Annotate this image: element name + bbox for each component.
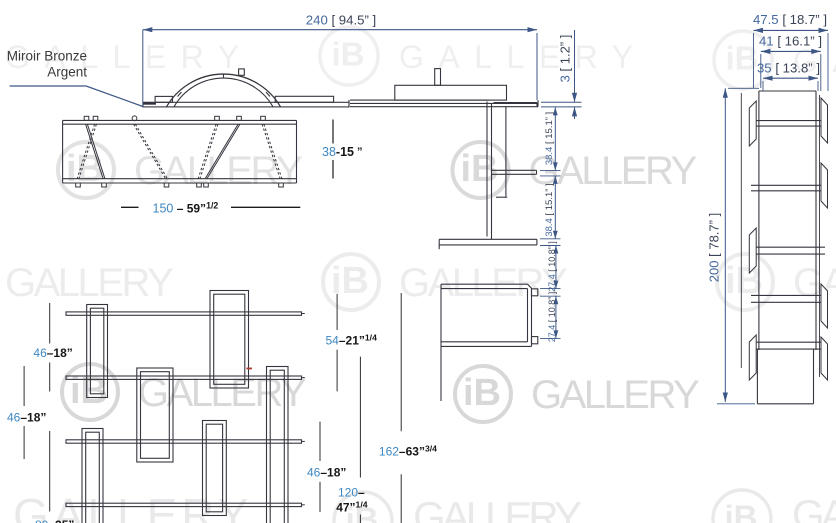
svg-text:38.4 [ 15.1” ]: 38.4 [ 15.1” ]: [544, 183, 555, 236]
svg-text:46–18”: 46–18”: [307, 466, 346, 480]
svg-text:38-15 ”: 38-15 ”: [322, 145, 363, 159]
svg-text:GALLERY: GALLERY: [793, 261, 836, 305]
svg-text:GALLERY: GALLERY: [399, 261, 567, 305]
svg-text:iB: iB: [461, 148, 499, 190]
svg-text:46–18”: 46–18”: [7, 411, 46, 425]
svg-text:27.4 [ 10.8” ]: 27.4 [ 10.8” ]: [547, 241, 557, 292]
svg-text:GALLERY: GALLERY: [399, 39, 648, 75]
svg-text:GALLERY: GALLERY: [531, 373, 699, 417]
svg-text:120–: 120–: [338, 486, 365, 500]
svg-text:GALLERY: GALLERY: [413, 493, 582, 523]
svg-text:200 [ 78.7” ]: 200 [ 78.7” ]: [707, 213, 722, 282]
svg-text:41 [ 16.1” ]: 41 [ 16.1” ]: [759, 34, 822, 49]
svg-text:Miroir Bronze: Miroir Bronze: [7, 49, 87, 64]
svg-text:iB: iB: [725, 499, 758, 523]
svg-text:27.4 [ 10.8” ]: 27.4 [ 10.8” ]: [547, 292, 557, 343]
svg-text:38.4 [ 15.1” ]: 38.4 [ 15.1” ]: [544, 112, 555, 165]
svg-text:GALLERY: GALLERY: [134, 149, 302, 193]
svg-text:47.5 [ 18.7” ]: 47.5 [ 18.7” ]: [753, 12, 827, 27]
svg-text:3 [ 1.2” ]: 3 [ 1.2” ]: [558, 35, 573, 83]
svg-text:iB: iB: [463, 372, 501, 414]
svg-text:Argent: Argent: [47, 65, 87, 80]
svg-text:35 [ 13.8” ]: 35 [ 13.8” ]: [757, 61, 820, 76]
svg-text:GALLERY: GALLERY: [792, 491, 836, 523]
svg-text:46–18”: 46–18”: [33, 346, 72, 360]
svg-text:GALLERY: GALLERY: [138, 371, 306, 415]
svg-text:iB: iB: [66, 148, 104, 190]
svg-text:iB: iB: [332, 36, 365, 73]
svg-text:80–35”: 80–35”: [35, 518, 74, 523]
svg-text:GALLERY: GALLERY: [5, 261, 173, 305]
svg-text:240 [ 94.5” ]: 240 [ 94.5” ]: [306, 13, 376, 28]
